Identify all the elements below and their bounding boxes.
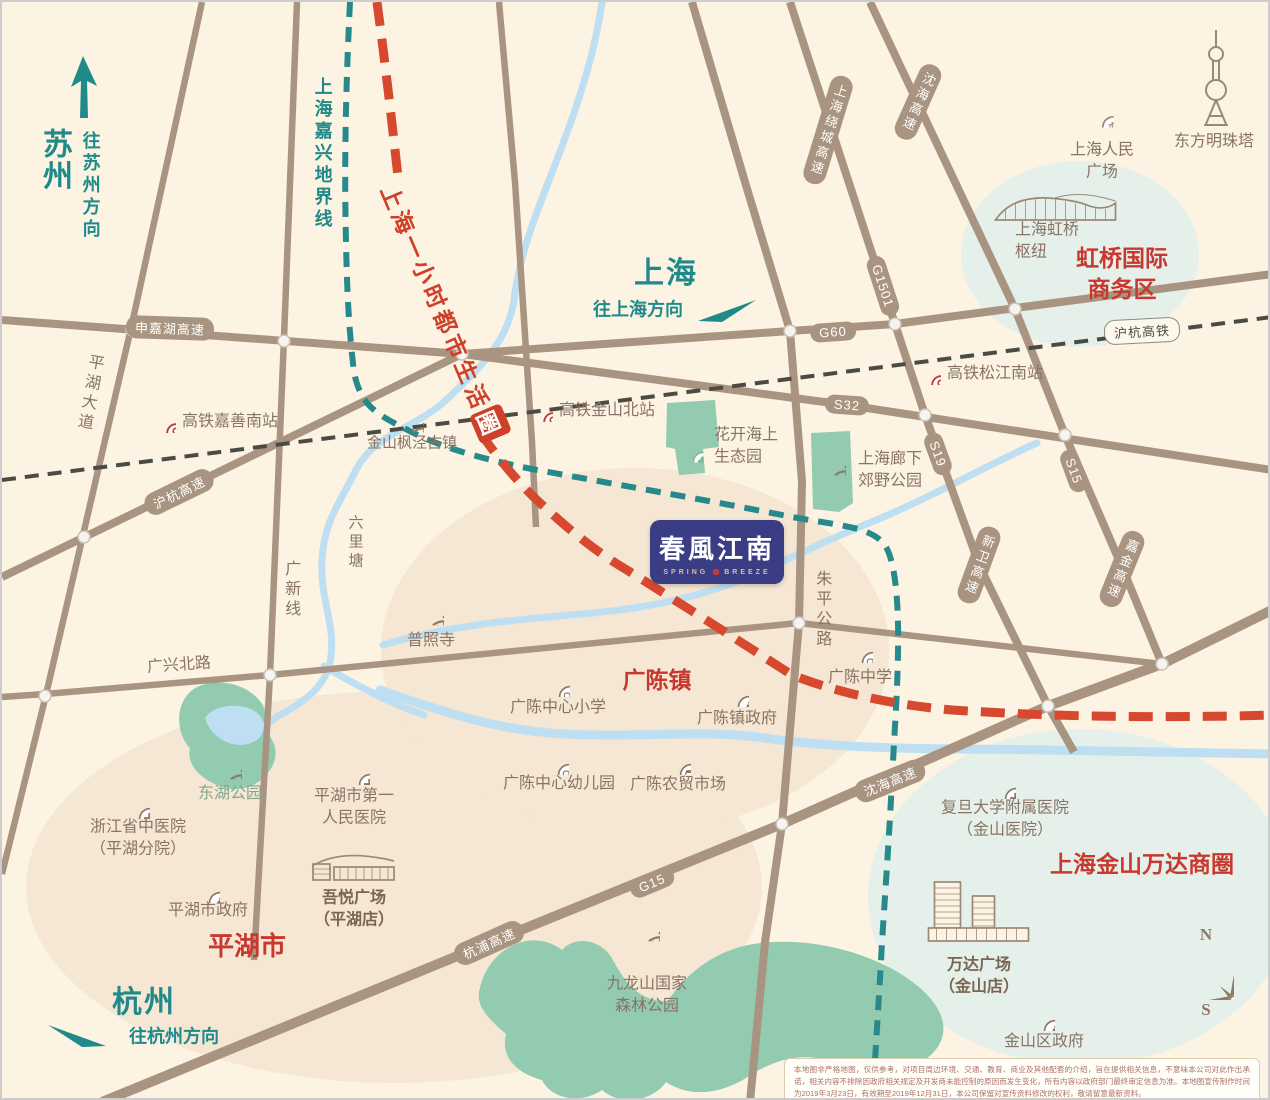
poi-line: 广场 xyxy=(1070,162,1134,184)
poi-hongqiao-hub: 上海虹桥枢纽 xyxy=(1015,220,1079,265)
zone-guangchen-town: 广陈镇 xyxy=(623,664,692,696)
school-icon xyxy=(544,671,570,697)
poi-gc-kindergarten: 广陈中心幼儿园 xyxy=(503,773,615,795)
temple-icon xyxy=(400,410,424,433)
poi-flower-sea-park: 花开海上生态园 xyxy=(714,425,778,470)
hospital-icon xyxy=(990,773,1016,799)
poi-line: 吾悦广场 xyxy=(322,890,386,907)
poi-langxia-park: 上海廊下郊野公园 xyxy=(858,449,922,494)
zone-hongqiao-cbd: 虹桥国际商务区 xyxy=(1076,243,1168,305)
hospital-icon xyxy=(344,759,370,785)
poi-gc-middle-school: 广陈中学 xyxy=(828,667,892,689)
temple-icon xyxy=(420,603,444,626)
poi-line: 上海廊下 xyxy=(858,451,922,468)
poi-line: 生态园 xyxy=(714,447,778,469)
government-icon xyxy=(1029,1005,1055,1031)
street-guangxing-north-road: 广兴北路 xyxy=(146,653,211,680)
poi-line: 枢纽 xyxy=(1015,242,1079,264)
shanghai-city-label: 上海 xyxy=(634,253,698,295)
suzhou-direction-note: 往苏州方向 xyxy=(77,131,102,241)
poi-line: 郊野公园 xyxy=(858,471,922,493)
project-logo-subtitle: SPRINGBREEZE xyxy=(663,569,770,576)
poi-line: 上海人民 xyxy=(1070,142,1134,159)
zone-line: 虹桥国际 xyxy=(1076,245,1168,271)
rail-pill-huhang: 沪杭高铁 xyxy=(1103,317,1180,346)
poi-jiulongshan-forest-park: 九龙山国家森林公园 xyxy=(607,974,687,1019)
hangzhou-city-label: 杭州 xyxy=(112,982,176,1024)
poi-line: 浙江省中医院 xyxy=(90,819,186,836)
poi-line: （平湖分院） xyxy=(90,839,186,861)
poi-line: 上海虹桥 xyxy=(1015,222,1079,239)
market-icon xyxy=(665,749,691,775)
street-zhuping-road: 朱平公路 xyxy=(810,570,832,650)
zone-pinghu-city: 平湖市 xyxy=(208,928,286,964)
poi-line: （金山店） xyxy=(939,977,1019,999)
hospital-icon xyxy=(124,793,150,819)
pearl-tower-icon xyxy=(1199,28,1233,128)
zone-jinshan-wanda: 上海金山万达商圈 xyxy=(1050,848,1234,880)
logo-en-left: SPRING xyxy=(663,569,708,576)
rail-station-icon xyxy=(531,400,553,422)
waterway-liulitang: 六里塘 xyxy=(345,515,366,572)
poi-donghu-park: 东湖公园 xyxy=(198,783,262,805)
station-jinshan-north: 高铁金山北站 xyxy=(559,400,655,422)
shanghai-arrow-icon xyxy=(698,295,758,323)
road-pill-s32: S32 xyxy=(824,394,869,416)
poi-line: 九龙山国家 xyxy=(607,976,687,993)
rail-station-icon xyxy=(919,363,941,385)
compass-north-label: N xyxy=(1200,923,1212,947)
location-map: 苏州 往苏州方向 上海 往上海方向 杭州 往杭州方向 上海嘉兴地界线 上海一小时… xyxy=(0,0,1270,1100)
poi-line: （金山医院） xyxy=(941,820,1069,842)
school-icon xyxy=(543,749,569,775)
project-logo: 春風江南 SPRINGBREEZE xyxy=(650,520,784,584)
hangzhou-direction-note: 往杭州方向 xyxy=(129,1024,219,1049)
rail-station-icon xyxy=(154,411,176,433)
poi-peoples-square: 上海人民广场 xyxy=(1070,140,1134,185)
poi-pearl-tower: 东方明珠塔 xyxy=(1174,131,1254,153)
poi-gc-market: 广陈农贸市场 xyxy=(630,774,726,796)
government-icon xyxy=(723,681,749,707)
suzhou-arrow-icon xyxy=(68,56,100,120)
pavilion-icon xyxy=(822,453,846,476)
zone-line: 商务区 xyxy=(1076,274,1168,305)
peoples-square-icon xyxy=(1087,101,1114,128)
poi-line: 人民医院 xyxy=(314,808,394,830)
station-jiashan-south: 高铁嘉善南站 xyxy=(182,411,278,433)
poi-line: 万达广场 xyxy=(947,957,1011,974)
poi-gc-primary-school: 广陈中心小学 xyxy=(510,697,606,719)
project-logo-name: 春風江南 xyxy=(659,529,775,566)
poi-line: 花开海上 xyxy=(714,427,778,444)
pavilion-icon xyxy=(636,919,660,942)
poi-zhejiang-hospital: 浙江省中医院（平湖分院） xyxy=(90,817,186,862)
suzhou-city-label: 苏州 xyxy=(33,128,75,192)
poi-pinghu-first-hospital: 平湖市第一人民医院 xyxy=(314,786,394,831)
school-icon xyxy=(847,637,873,663)
boundary-line-label: 上海嘉兴地界线 xyxy=(309,77,334,231)
street-guangxin-line: 广新线 xyxy=(279,560,301,620)
pavilion-icon xyxy=(218,757,242,780)
disclaimer-note: 本地图非严格地图，仅供参考，对项目周边环境、交通、教育、商业及其他配套的介绍，旨… xyxy=(784,1058,1260,1100)
poi-line: 复旦大学附属医院 xyxy=(941,800,1069,817)
road-pill-shenjiahu: 申嘉湖高速 xyxy=(126,315,215,341)
tree-icon xyxy=(677,436,704,463)
poi-wuyue-plaza: 吾悦广场（平湖店） xyxy=(314,888,394,933)
poi-line: 森林公园 xyxy=(607,996,687,1018)
wuyue-mall-icon xyxy=(310,854,398,886)
logo-en-right: BREEZE xyxy=(724,569,770,576)
compass-south-label: S xyxy=(1201,998,1210,1022)
poi-line: 平湖市第一 xyxy=(314,788,394,805)
poi-gc-government: 广陈镇政府 xyxy=(697,708,777,730)
logo-dot-icon xyxy=(713,569,719,575)
poi-pinghu-government: 平湖市政府 xyxy=(168,900,248,922)
poi-fengjing-town: 金山枫泾古镇 xyxy=(367,433,457,454)
compass-rose-icon xyxy=(1178,944,1234,1000)
poi-line: （平湖店） xyxy=(314,910,394,932)
road-pill-g60: G60 xyxy=(810,321,857,343)
wanda-towers-icon xyxy=(927,880,1032,950)
station-songjiang-south: 高铁松江南站 xyxy=(947,363,1043,385)
poi-puzhao-temple: 普照寺 xyxy=(407,630,455,652)
poi-fudan-hospital: 复旦大学附属医院（金山医院） xyxy=(941,798,1069,843)
poi-jinshan-government: 金山区政府 xyxy=(1004,1031,1084,1053)
shanghai-direction-note: 往上海方向 xyxy=(593,297,683,322)
hangzhou-arrow-icon xyxy=(46,1020,106,1048)
poi-wanda-plaza: 万达广场（金山店） xyxy=(939,955,1019,1000)
